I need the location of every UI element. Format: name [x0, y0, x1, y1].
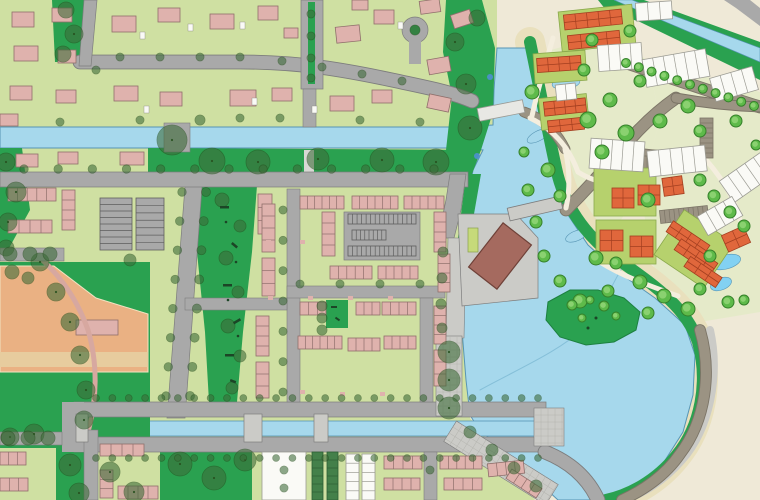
map-canvas: [0, 0, 760, 500]
masterplan-map: Residential masterplan site map with can…: [0, 0, 760, 500]
